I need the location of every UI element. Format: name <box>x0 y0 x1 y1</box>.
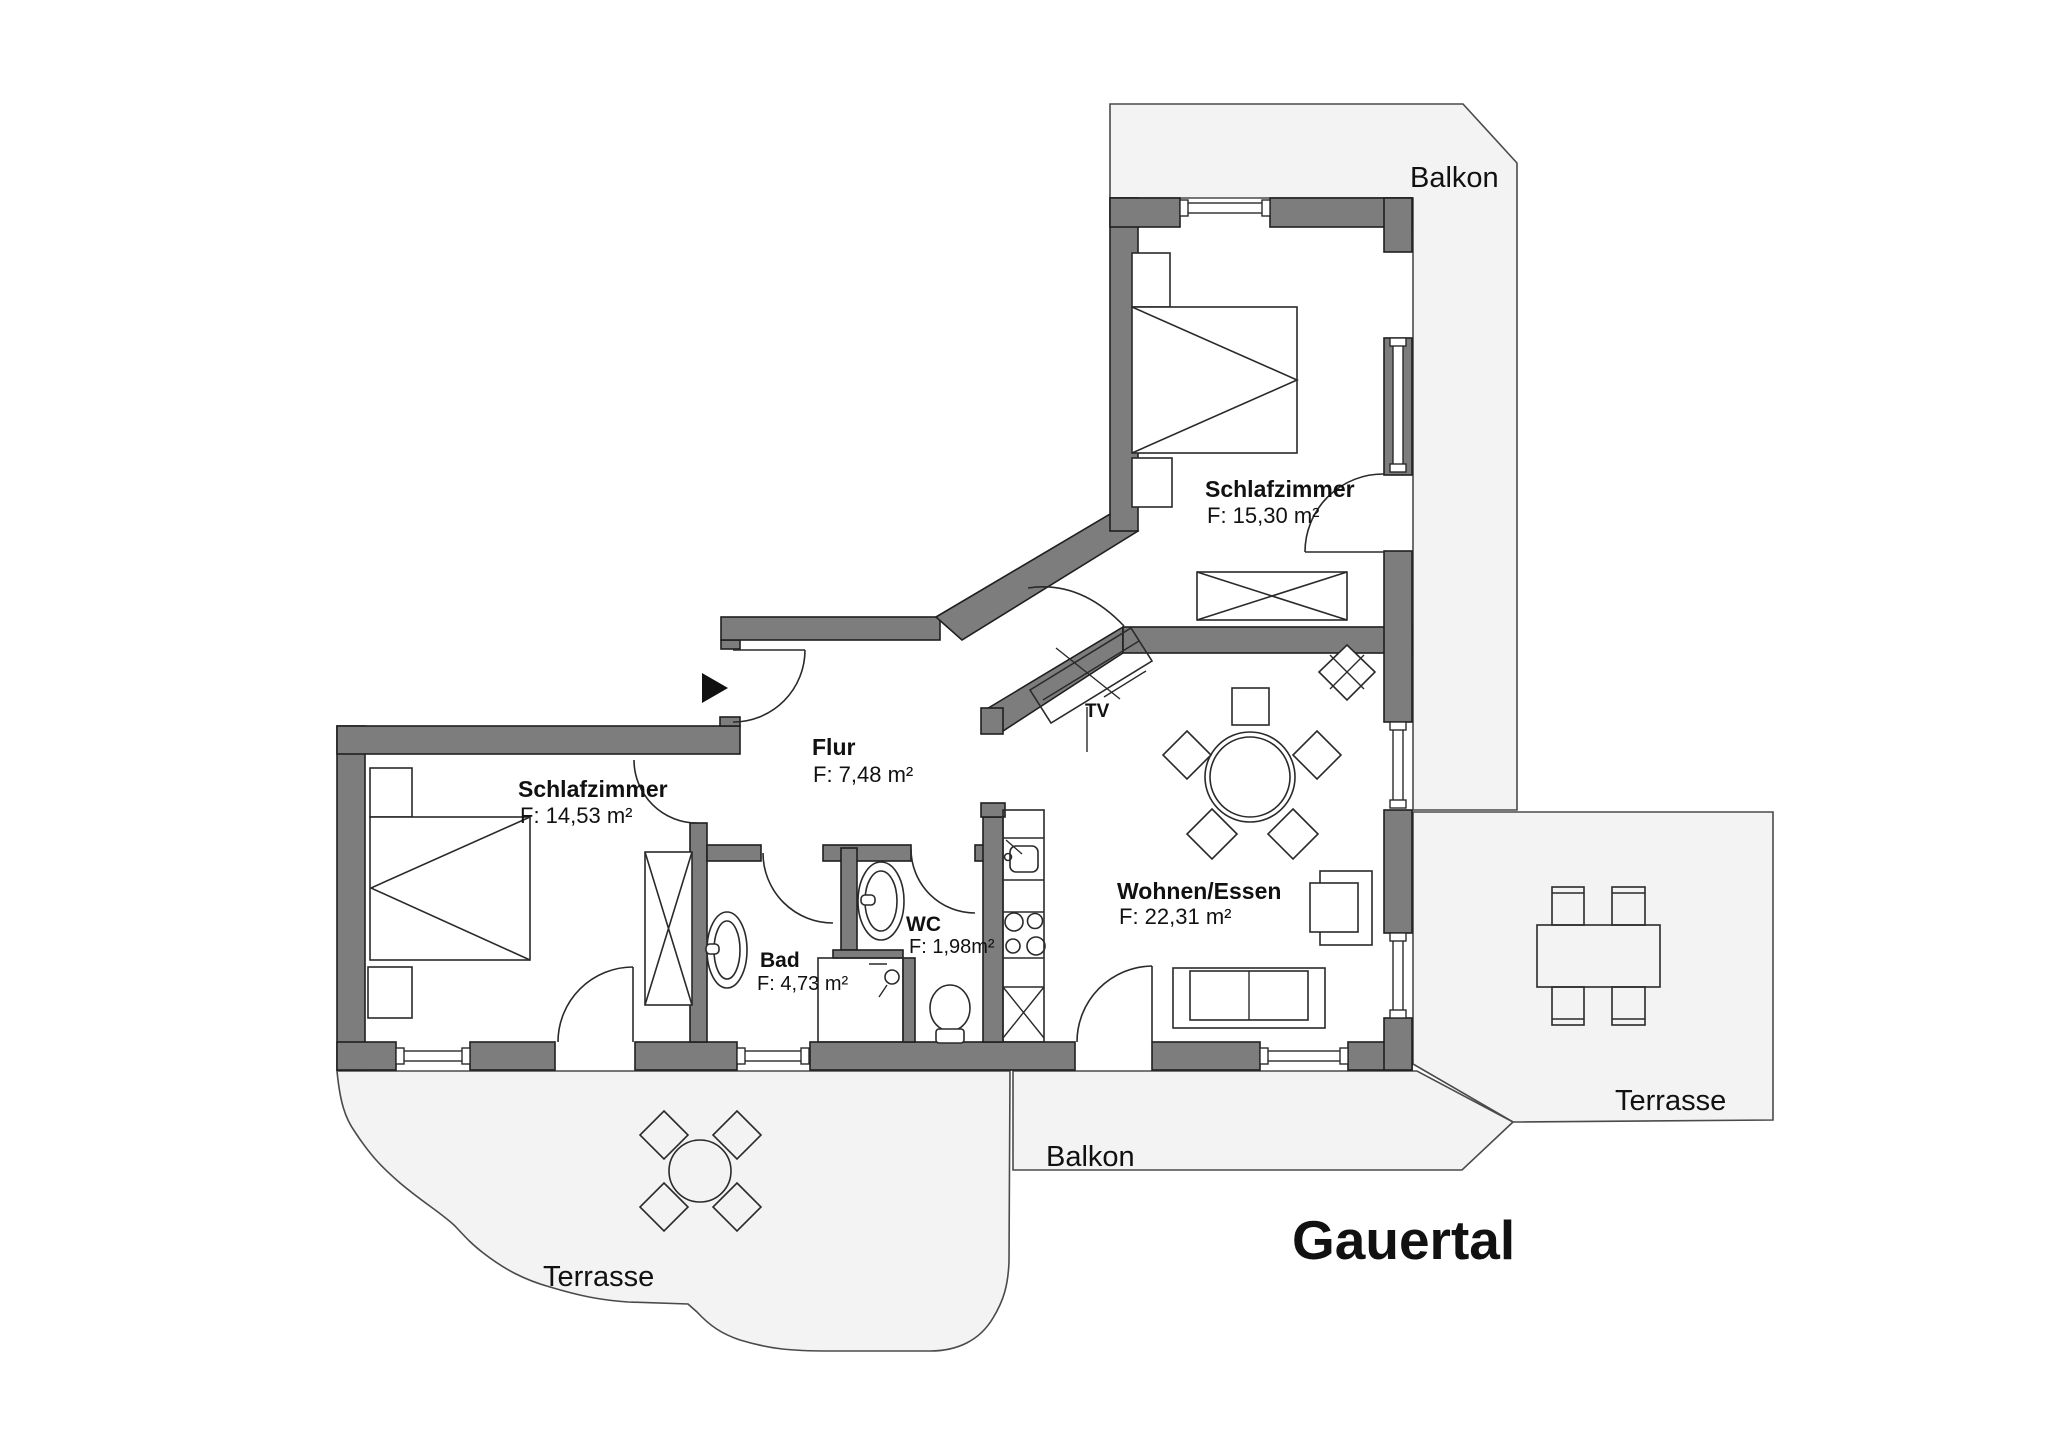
tv-label: TV <box>1085 701 1110 722</box>
living-furniture <box>1030 628 1375 1028</box>
room-label-wc: WC <box>906 913 941 936</box>
wall-bottom-seg4 <box>810 1042 1075 1070</box>
wall-bottom-seg5 <box>1152 1042 1260 1070</box>
door-wc <box>911 849 975 913</box>
dining-chair <box>1232 688 1269 725</box>
nightstand <box>368 967 412 1018</box>
wall-right-seg4 <box>1384 810 1412 933</box>
wall-diagonal-upper <box>936 514 1138 640</box>
wall-hall-top <box>721 617 940 640</box>
dining-chair <box>1293 731 1341 779</box>
balcony-top-label: Balkon <box>1410 162 1499 194</box>
appliance-x <box>1003 987 1044 1038</box>
faucet <box>861 895 875 905</box>
room-area-flur: F: 7,48 m² <box>813 762 913 787</box>
wall-entry-jamb-top <box>721 640 740 649</box>
wall-wc-west <box>841 848 857 950</box>
dining-chair <box>1163 731 1211 779</box>
wall-shower-top <box>833 950 903 958</box>
armchair <box>1310 871 1372 945</box>
room-label-bad: Bad <box>760 949 800 972</box>
dining-table <box>1205 732 1295 822</box>
room-area-schlafzimmer-left: F: 14,53 m² <box>520 803 632 828</box>
wall-bedroomtop-top-seg1 <box>1110 198 1180 227</box>
window-living-east-1 <box>1390 722 1406 808</box>
kitchen-sink <box>1005 840 1039 872</box>
plan-title: Gauertal <box>1292 1209 1515 1271</box>
wall-bad-top-seg2 <box>823 845 911 861</box>
room-area-wohnen: F: 22,31 m² <box>1119 904 1231 929</box>
balcony-bottom-label: Balkon <box>1046 1141 1135 1173</box>
wall-kitchen <box>983 817 1003 1042</box>
room-area-schlafzimmer-top: F: 15,30 m² <box>1207 503 1319 528</box>
room-label-flur: Flur <box>812 734 855 760</box>
terrace-right-area <box>1413 812 1773 1122</box>
faucet <box>706 944 719 954</box>
entry-arrow-icon <box>702 673 728 703</box>
sofa <box>1173 968 1325 1028</box>
dining-chair <box>1268 809 1318 859</box>
wall-right-seg1 <box>1384 198 1412 252</box>
window-bedroomleft-south <box>396 1048 470 1064</box>
nightstand <box>1132 253 1170 307</box>
door-bedroomleft-terrace <box>558 967 633 1042</box>
room-label-schlafzimmer-top: Schlafzimmer <box>1205 476 1355 502</box>
terrace-left-label: Terrasse <box>543 1261 654 1293</box>
wall-shower-east <box>903 958 915 1042</box>
shower <box>818 958 903 1042</box>
wardrobe <box>645 852 692 1005</box>
wall-diagonal-lower-cap <box>981 708 1003 734</box>
terrace-left-area <box>337 1071 1010 1351</box>
door-entry <box>733 650 805 722</box>
terrace-right-label: Terrasse <box>1615 1085 1726 1117</box>
floorplan-drawing: Schlafzimmer F: 15,30 m² Schlafzimmer F:… <box>0 0 2048 1448</box>
room-label-schlafzimmer-left: Schlafzimmer <box>518 776 668 802</box>
kitchen-counter <box>1003 810 1045 1042</box>
bed <box>370 817 530 960</box>
wall-leftwing-top <box>337 726 740 754</box>
toilet <box>930 985 970 1043</box>
bedroomtop-furniture <box>1132 253 1347 620</box>
room-label-wohnen: Wohnen/Essen <box>1117 878 1281 904</box>
floorplan-page: Schlafzimmer F: 15,30 m² Schlafzimmer F:… <box>0 0 2048 1448</box>
wall-bottom-seg2 <box>470 1042 555 1070</box>
door-bad <box>763 853 833 923</box>
wall-right-seg5 <box>1384 1018 1412 1070</box>
room-area-wc: F: 1,98m² <box>909 936 995 958</box>
wall-bedroomtop-living <box>1123 627 1412 653</box>
window-living-south <box>1260 1048 1348 1064</box>
wall-kitchen-cap <box>981 803 1005 817</box>
wall-left-exterior <box>337 726 365 1070</box>
door-living-balcony <box>1077 966 1152 1042</box>
nightstand <box>370 768 412 817</box>
wall-bad-top-seg1 <box>707 845 761 861</box>
wall-bottom-seg3 <box>635 1042 737 1070</box>
nightstand <box>1132 458 1172 507</box>
bed <box>1132 307 1297 453</box>
room-area-bad: F: 4,73 m² <box>757 973 848 995</box>
wall-bottom-seg1 <box>337 1042 396 1070</box>
wall-right-seg3 <box>1384 551 1412 722</box>
window-bedroomtop-north <box>1180 200 1270 216</box>
window-living-east-2 <box>1390 933 1406 1018</box>
window-bad-south <box>737 1048 809 1064</box>
cooktop <box>1005 913 1045 955</box>
wardrobe <box>1197 572 1347 620</box>
door-hall-living <box>1028 587 1124 626</box>
window-bedroomtop-east <box>1390 338 1406 472</box>
